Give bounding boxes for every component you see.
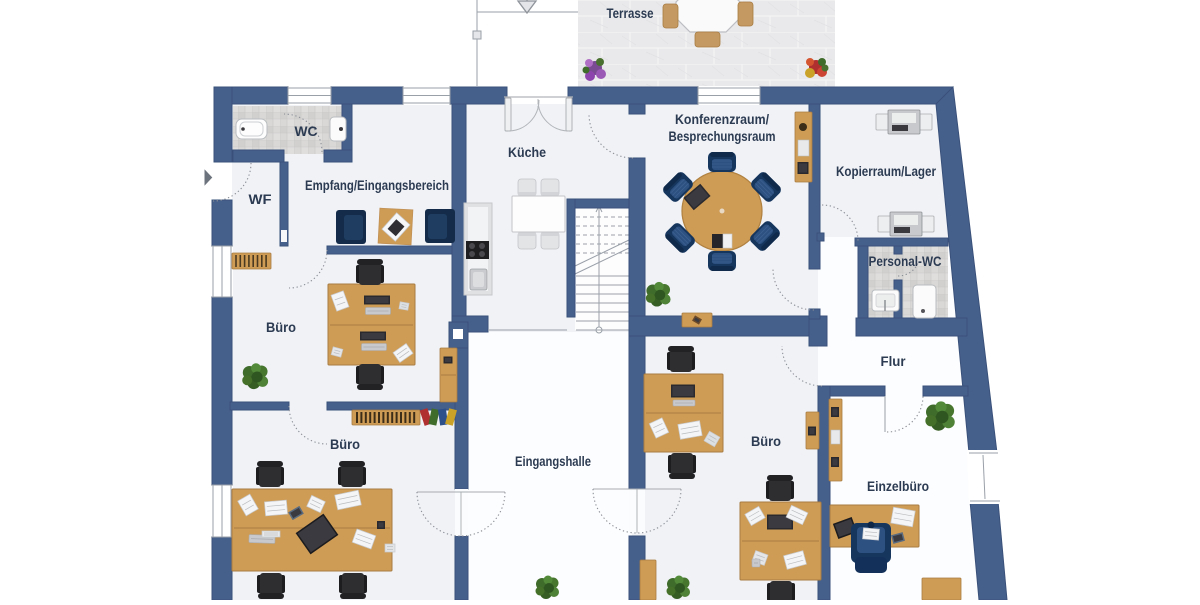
svg-text:Eingangshalle: Eingangshalle: [515, 453, 591, 469]
svg-text:Kopierraum/Lager: Kopierraum/Lager: [836, 163, 936, 179]
svg-text:Flur: Flur: [881, 353, 907, 369]
svg-text:WC: WC: [295, 123, 318, 139]
svg-text:WF: WF: [249, 191, 272, 207]
svg-text:Küche: Küche: [508, 144, 546, 160]
svg-text:Büro: Büro: [751, 433, 781, 449]
svg-text:Konferenzraum/: Konferenzraum/: [675, 111, 769, 127]
svg-text:Besprechungsraum: Besprechungsraum: [669, 128, 776, 144]
svg-text:Terrasse: Terrasse: [607, 5, 654, 21]
svg-text:Büro: Büro: [266, 319, 296, 335]
svg-text:Empfang/Eingangsbereich: Empfang/Eingangsbereich: [305, 177, 449, 193]
svg-text:Personal-WC: Personal-WC: [869, 254, 942, 269]
svg-text:Büro: Büro: [330, 436, 360, 452]
svg-text:Einzelbüro: Einzelbüro: [867, 478, 929, 494]
